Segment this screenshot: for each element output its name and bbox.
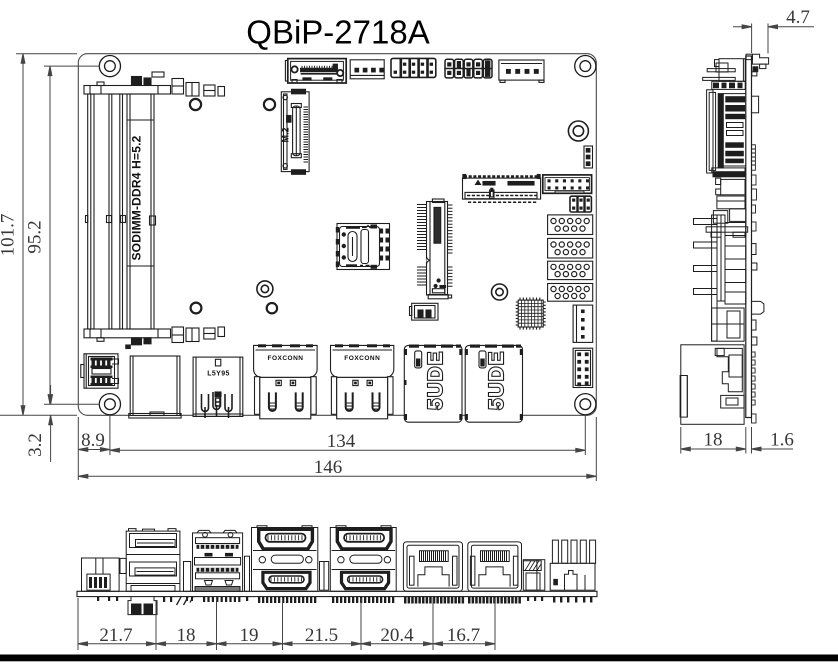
svg-text:134: 134 [327,431,356,452]
svg-text:1.6: 1.6 [770,430,794,451]
svg-text:18: 18 [177,625,196,646]
svg-text:21.5: 21.5 [305,625,338,646]
svg-text:FOXCONN: FOXCONN [344,355,380,362]
svg-text:16.7: 16.7 [447,625,480,646]
svg-text:5UDE: 5UDE [486,350,508,409]
svg-text:8.9: 8.9 [81,430,105,451]
svg-text:21.7: 21.7 [99,625,132,646]
svg-text:L5Y95: L5Y95 [207,371,230,378]
svg-text:146: 146 [314,457,343,478]
svg-text:M.2: M.2 [281,127,291,142]
svg-text:19: 19 [240,625,259,646]
svg-text:95.2: 95.2 [25,220,46,253]
svg-text:QBiP-2718A: QBiP-2718A [246,14,429,51]
svg-text:FOXCONN: FOXCONN [268,355,304,362]
svg-text:18: 18 [704,430,723,451]
svg-text:SODIMM-DDR4 H=5.2: SODIMM-DDR4 H=5.2 [130,135,144,260]
svg-text:101.7: 101.7 [0,214,19,257]
svg-text:20.4: 20.4 [380,625,414,646]
svg-text:4.7: 4.7 [786,7,810,28]
svg-text:5UDE: 5UDE [425,350,447,409]
svg-text:3.2: 3.2 [25,433,46,457]
